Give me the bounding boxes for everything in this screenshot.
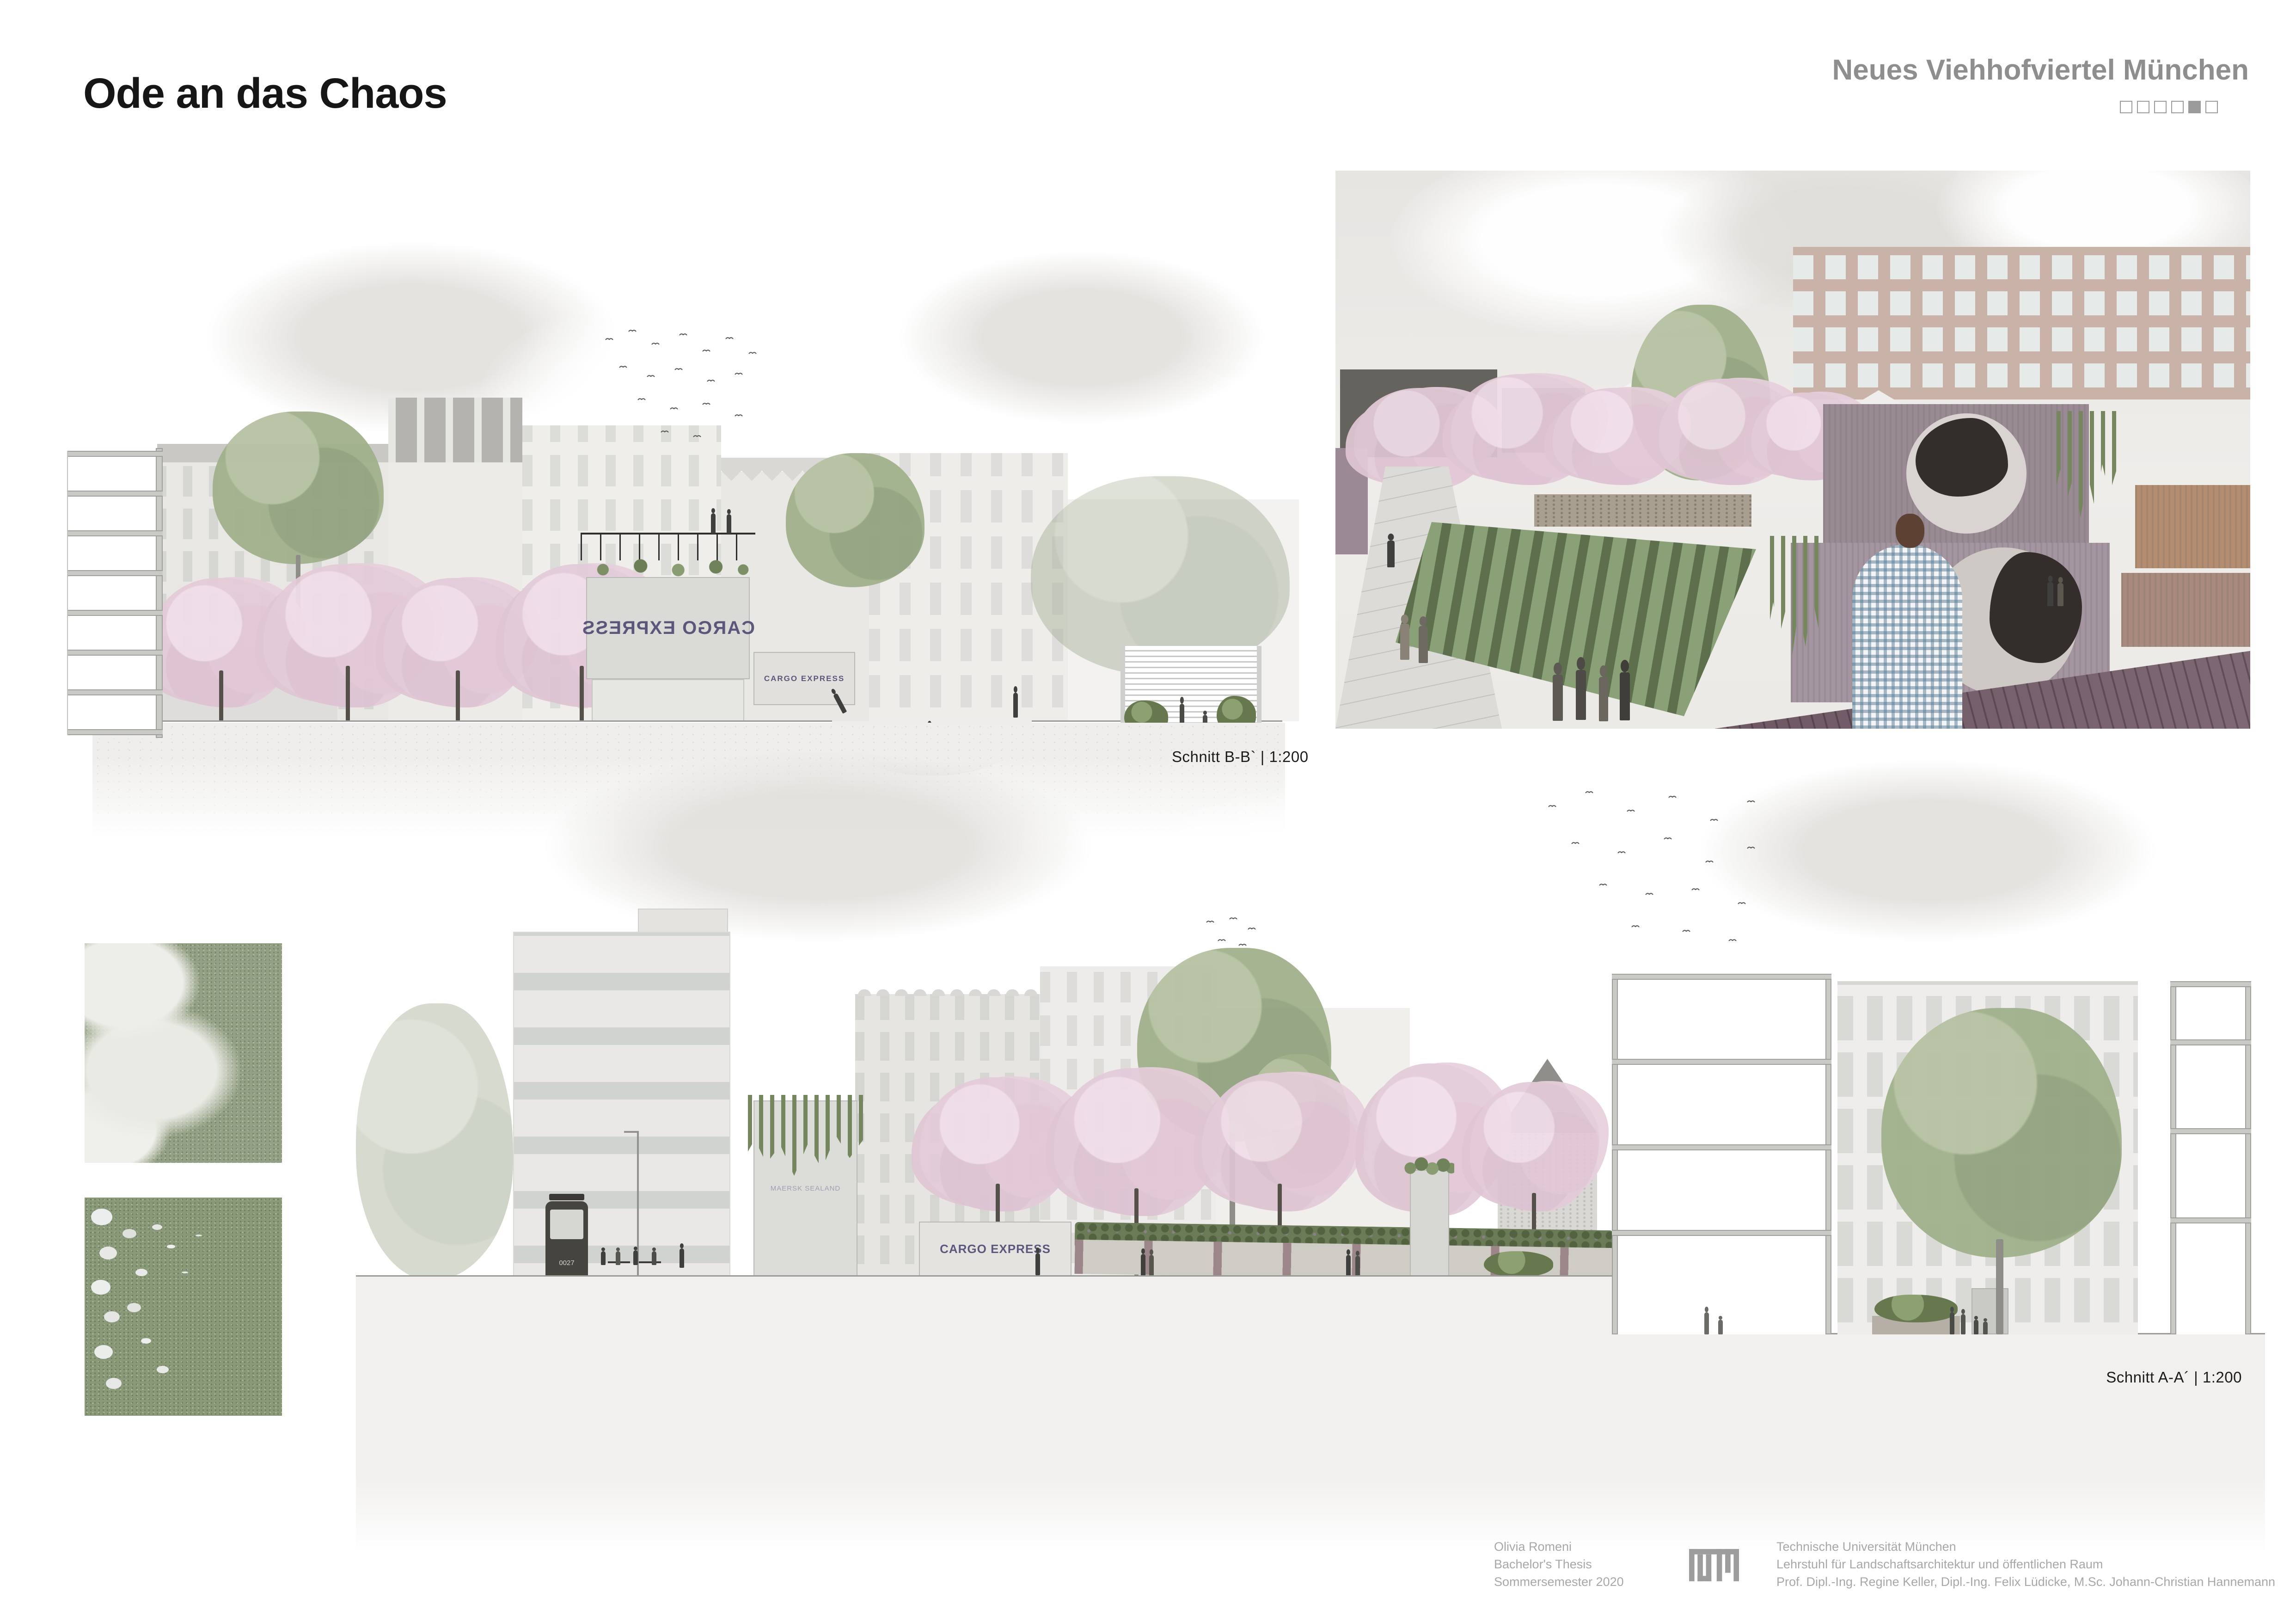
- plant-clump: [1874, 1295, 1958, 1322]
- green-roof: [1404, 1156, 1454, 1176]
- person-silhouette: [727, 514, 731, 534]
- credits-semester: Sommersemester 2020: [1494, 1573, 1624, 1591]
- cargo-container-label-bb: CARGO EXPRESS: [582, 618, 755, 639]
- person-silhouette: [1346, 1255, 1351, 1276]
- section-wall: [1825, 974, 1831, 1334]
- tram-window: [550, 1210, 583, 1239]
- floor-slab: [1612, 1230, 1831, 1236]
- person-silhouette: [1141, 1254, 1145, 1276]
- tree-trunk: [1996, 1239, 2003, 1334]
- floor-slab: [2170, 981, 2251, 987]
- section-aa-label: Schnitt A-A´ | 1:200: [2106, 1369, 2242, 1386]
- page-title: Ode an das Chaos: [83, 69, 447, 118]
- planter-box: [1484, 1251, 1553, 1277]
- observer-head: [1896, 514, 1924, 548]
- person-silhouette: [1950, 1312, 1954, 1334]
- person-silhouette: [1983, 1321, 1988, 1334]
- floor-slab: [1612, 1144, 1831, 1150]
- person-silhouette: [601, 1251, 606, 1265]
- floor-slab: [1612, 974, 1831, 980]
- floor-slab: [68, 650, 163, 656]
- arched-cornice: [855, 980, 1040, 996]
- page-indicator-square: [2154, 101, 2167, 113]
- street-lamp-arm: [624, 1131, 639, 1133]
- credits-thesis: Bachelor's Thesis: [1494, 1555, 1624, 1573]
- page-indicator-square: [2188, 101, 2201, 113]
- floor-slab: [68, 451, 163, 457]
- mural-face-hair: [1990, 552, 2082, 663]
- presentation-board: Ode an das Chaos Neues Viehhofviertel Mü…: [0, 0, 2296, 1622]
- person-silhouette: [1718, 1320, 1723, 1334]
- tum-logo: [1689, 1548, 1739, 1582]
- floor-slab: [68, 570, 163, 576]
- person-silhouette: [1400, 624, 1409, 660]
- credits-supervisors: Prof. Dipl.-Ing. Regine Keller, Dipl.-In…: [1776, 1573, 2275, 1591]
- page-indicator-square: [2205, 101, 2218, 113]
- floor-slab: [1612, 1059, 1831, 1065]
- stone-wall: [1534, 494, 1751, 527]
- floor-slab: [68, 610, 163, 616]
- skater-silhouette: [1013, 693, 1018, 718]
- person-silhouette: [1974, 1320, 1978, 1334]
- cargo-container-aa: CARGO EXPRESS: [919, 1222, 1071, 1276]
- person-silhouette: [1035, 1253, 1040, 1275]
- mural-container-upper: [1823, 404, 2089, 543]
- cloud: [541, 749, 1096, 943]
- observer-shirt: [1852, 544, 1962, 729]
- stone-cluster: [91, 1209, 112, 1225]
- section-wall: [1612, 974, 1618, 1334]
- person-silhouette: [652, 1251, 656, 1265]
- tree-trunk: [580, 666, 584, 721]
- brick-apartment-building: [1793, 247, 2250, 399]
- cargo-container-label-aa: CARGO EXPRESS: [940, 1242, 1051, 1256]
- rooftop-unit: [638, 909, 728, 933]
- floor-slab: [2170, 1217, 2251, 1223]
- floor-slab: [68, 530, 163, 536]
- page-indicator-square: [2137, 101, 2149, 113]
- tram-roof-rack: [549, 1194, 584, 1200]
- texture-swatch-gravel-grass: [85, 943, 282, 1163]
- section-wall: [2170, 981, 2176, 1334]
- section-box-left: [1612, 974, 1831, 1334]
- bird-flock: [1530, 777, 1807, 962]
- floor-slab: [68, 689, 163, 695]
- cargo-container: CARGO EXPRESS: [586, 577, 750, 679]
- roof-railing: [581, 533, 755, 560]
- floor-slab: [2170, 1039, 2251, 1045]
- person-silhouette: [616, 1251, 620, 1265]
- container-tower: [1410, 1170, 1449, 1276]
- perspective-render: [1335, 171, 2250, 729]
- page-indicator-square: [2120, 101, 2132, 113]
- green-roof: [582, 559, 753, 577]
- cargo-container: [592, 679, 744, 721]
- floor-slab: [68, 491, 163, 497]
- person-silhouette: [1149, 1255, 1154, 1276]
- person-silhouette: [711, 513, 716, 534]
- person-silhouette: [2057, 583, 2063, 606]
- cargo-container: CARGO EXPRESS: [753, 652, 855, 705]
- cloud: [897, 250, 1267, 425]
- tram-vehicle: 0027: [545, 1201, 588, 1279]
- tree-green-canopy: [213, 412, 384, 564]
- ground-line: [356, 1275, 1614, 1277]
- credits-block-university: Technische Universität München Lehrstuhl…: [1776, 1538, 2275, 1591]
- building-section-cut-left: [67, 451, 163, 735]
- project-title: Neues Viehhofviertel München: [1832, 54, 2249, 86]
- person-silhouette: [633, 1250, 638, 1265]
- section-aa-drawing: MAERSK SEALAND CARGO EXPRESS 0027: [356, 749, 2265, 1563]
- ground-line: [1261, 720, 1282, 722]
- tree-green-canopy: [1881, 1008, 2122, 1258]
- tree-green-canopy: [786, 453, 925, 587]
- credits-chair: Lehrstuhl für Landschaftsarchitektur und…: [1776, 1555, 2275, 1573]
- tram-number: 0027: [545, 1259, 588, 1267]
- rust-container: [2121, 573, 2250, 647]
- credits-block-author: Olivia Romeni Bachelor's Thesis Sommerse…: [1494, 1538, 1624, 1591]
- person-silhouette: [1704, 1312, 1709, 1334]
- tree-green-canopy: [356, 1003, 513, 1281]
- floor-slab: [2170, 1128, 2251, 1134]
- mansard-roof: [388, 398, 522, 462]
- person-silhouette: [1599, 677, 1608, 721]
- tree-trunk: [219, 670, 223, 721]
- credits-author: Olivia Romeni: [1494, 1538, 1624, 1555]
- person-silhouette: [1961, 1314, 1965, 1334]
- person-silhouette: [1419, 626, 1428, 663]
- tree-blossom-canopy: [1470, 1082, 1599, 1211]
- cargo-container-label-small: CARGO EXPRESS: [764, 674, 845, 683]
- person-silhouette: [1387, 541, 1395, 567]
- bird-flock: [596, 324, 795, 449]
- person-silhouette: [1355, 1256, 1360, 1276]
- cafe-table: [639, 1261, 661, 1263]
- person-silhouette: [2047, 582, 2053, 606]
- person-silhouette: [680, 1248, 684, 1268]
- floor-slab: [68, 729, 163, 735]
- person-silhouette: [1553, 675, 1563, 721]
- page-indicator-square: [2171, 101, 2184, 113]
- person-silhouette: [1576, 670, 1586, 720]
- tree-green-canopy: [1031, 476, 1290, 675]
- page-indicator: [2120, 101, 2218, 113]
- tree-trunk: [346, 666, 350, 721]
- credits-university: Technische Universität München: [1776, 1538, 2275, 1555]
- texture-swatch-paver-grass: [85, 1198, 282, 1416]
- section-wall: [2245, 981, 2251, 1334]
- ground-line: [1032, 720, 1120, 722]
- rust-container: [2135, 485, 2250, 568]
- section-box-right: [2170, 981, 2251, 1334]
- tree-trunk: [456, 670, 460, 721]
- container-brand-label: MAERSK SEALAND: [771, 1185, 841, 1192]
- ground-line: [97, 720, 832, 722]
- person-silhouette: [1620, 672, 1630, 720]
